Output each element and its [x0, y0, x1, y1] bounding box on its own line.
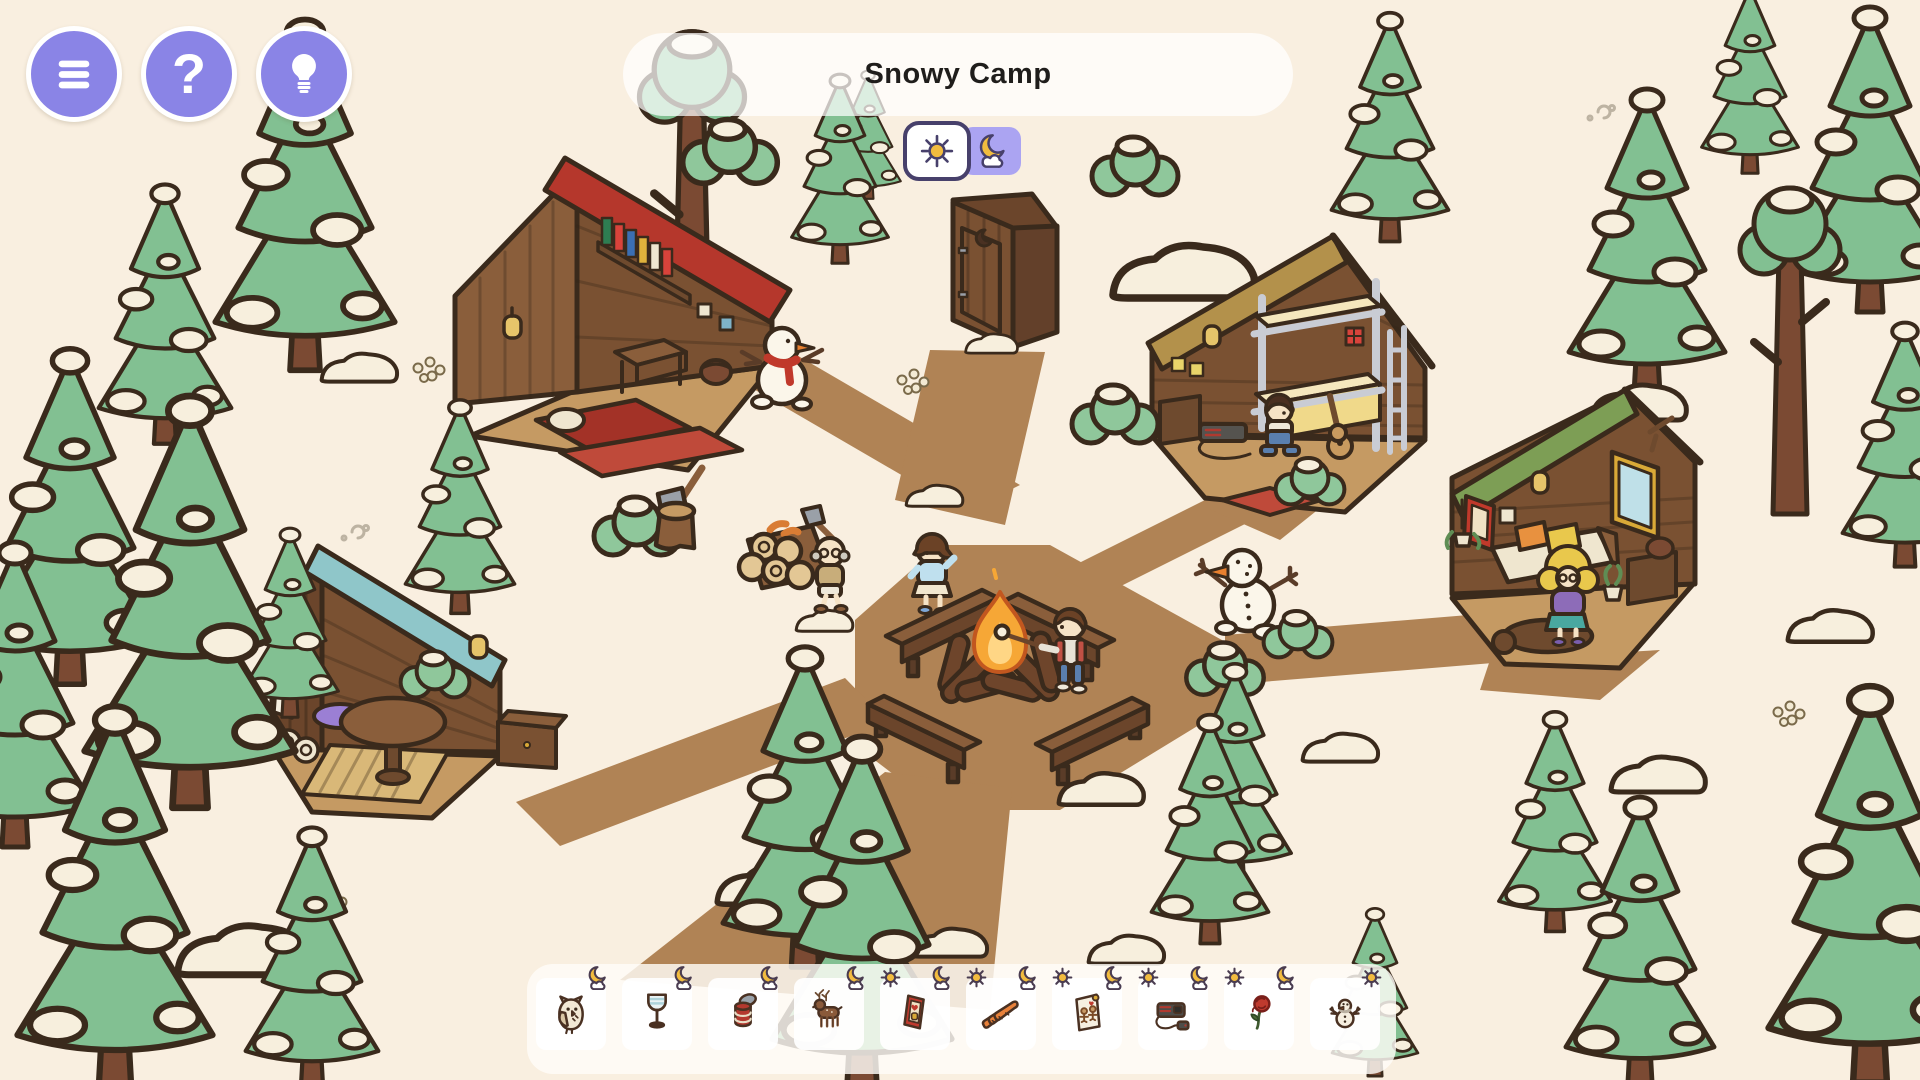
item-cell-deer[interactable]: [794, 978, 864, 1050]
night-available-badge: [1186, 965, 1213, 990]
night-available-badge: [842, 965, 869, 990]
hud-buttons: ?: [26, 26, 352, 122]
playing-card-icon: [892, 989, 938, 1040]
day-available-badge: [963, 965, 990, 990]
time-toggle: [903, 121, 1021, 181]
game-console-icon: [1150, 989, 1196, 1040]
night-available-badge: [1014, 965, 1041, 990]
day-available-badge: [1358, 965, 1385, 990]
rose-icon: [1236, 989, 1282, 1040]
nightstand: [1160, 396, 1200, 444]
wall-lantern: [1532, 472, 1548, 493]
sun-icon: [916, 130, 958, 172]
mirror-gold: [1612, 452, 1658, 538]
floor-mat: [302, 745, 448, 802]
level-title: Snowy Camp: [864, 58, 1051, 91]
deer-icon: [806, 989, 852, 1040]
menu-button[interactable]: [26, 26, 122, 122]
outhouse[interactable]: [953, 194, 1057, 353]
item-cell-rose[interactable]: [1224, 978, 1294, 1050]
item-cell-playing-card[interactable]: [880, 978, 950, 1050]
item-cell-game-console[interactable]: [1138, 978, 1208, 1050]
item-cell-tin-can[interactable]: [708, 978, 778, 1050]
day-available-badge: [1135, 965, 1162, 990]
night-available-badge: [1100, 965, 1127, 990]
cabinet: [498, 711, 566, 768]
item-cell-carrots[interactable]: [966, 978, 1036, 1050]
night-available-badge: [756, 965, 783, 990]
night-available-badge: [1272, 965, 1299, 990]
day-available-badge: [1049, 965, 1076, 990]
item-cell-gingerbread-card[interactable]: [1052, 978, 1122, 1050]
carrots-icon: [978, 989, 1024, 1040]
game-stage: ? Snowy Camp: [0, 0, 1920, 1080]
wine-glass-icon: [634, 989, 680, 1040]
lightbulb-icon: [280, 50, 328, 98]
satchel: [701, 360, 731, 384]
day-available-badge: [1221, 965, 1248, 990]
item-cell-owl[interactable]: [536, 978, 606, 1050]
night-available-badge: [584, 965, 611, 990]
day-toggle-button[interactable]: [903, 121, 971, 181]
hint-button[interactable]: [256, 26, 352, 122]
menu-icon: [51, 51, 97, 97]
item-cell-wine-glass[interactable]: [622, 978, 692, 1050]
tin-can-icon: [720, 989, 766, 1040]
night-available-badge: [928, 965, 955, 990]
help-button[interactable]: ?: [141, 26, 237, 122]
day-available-badge: [877, 965, 904, 990]
wall-lantern: [470, 636, 487, 658]
find-bar-cells: [527, 964, 1396, 1050]
find-items-bar: [527, 964, 1396, 1074]
snowman-icon: [1322, 989, 1368, 1040]
moon-cloud-icon: [971, 132, 1011, 170]
level-title-banner: Snowy Camp: [623, 33, 1293, 116]
item-cell-snowman[interactable]: [1310, 978, 1380, 1050]
owl-icon: [548, 989, 594, 1040]
question-icon: ?: [172, 46, 206, 102]
night-available-badge: [670, 965, 697, 990]
gingerbread-card-icon: [1064, 989, 1110, 1040]
wall-lantern: [1204, 326, 1220, 347]
